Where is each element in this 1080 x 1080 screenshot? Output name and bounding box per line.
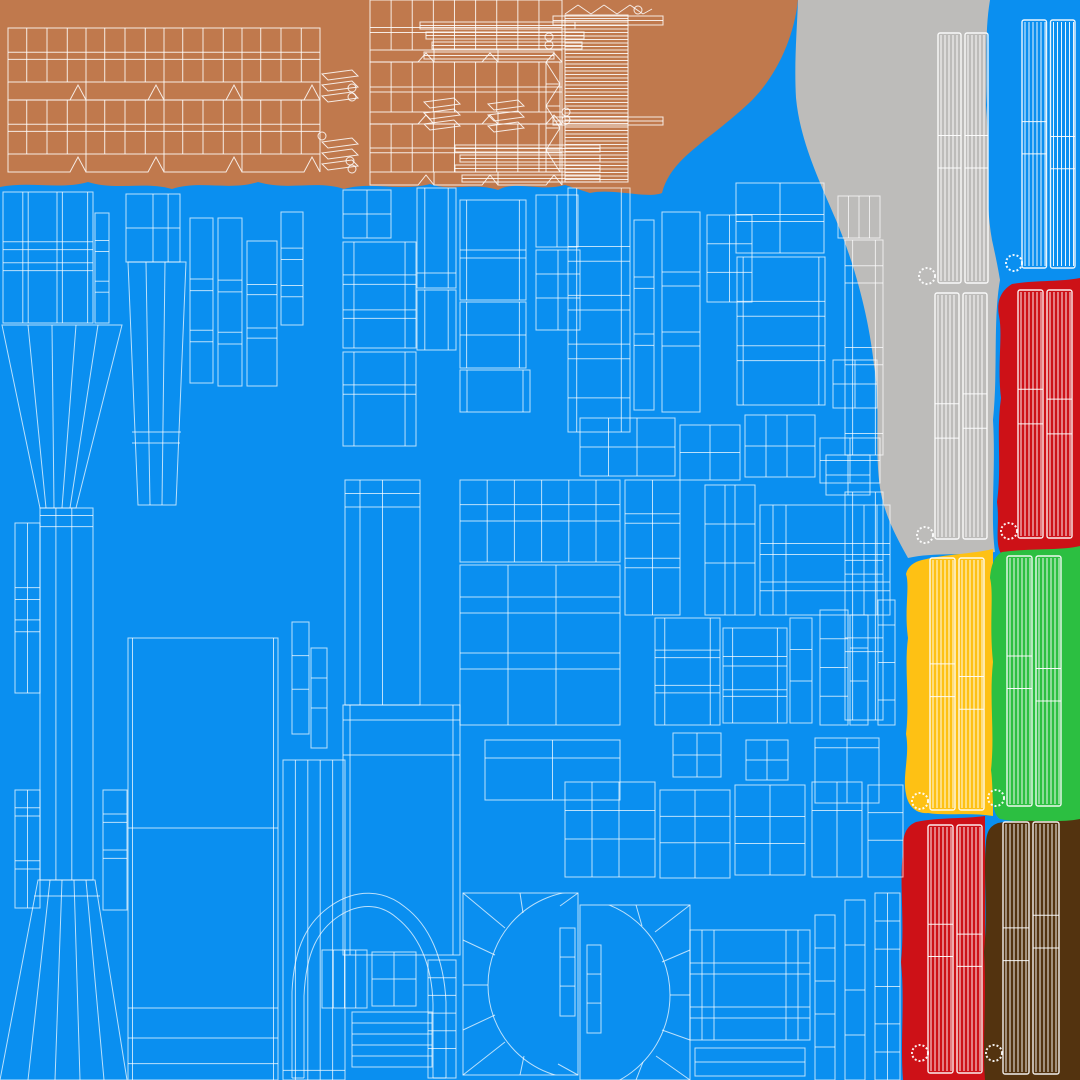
region-red-upper [997, 278, 1080, 560]
region-darkbrown-lower [984, 819, 1080, 1080]
uv-wireframe-svg [0, 0, 1080, 1080]
uv-texture-canvas [0, 0, 1080, 1080]
uv-strip [875, 893, 900, 1080]
region-green [990, 546, 1080, 824]
